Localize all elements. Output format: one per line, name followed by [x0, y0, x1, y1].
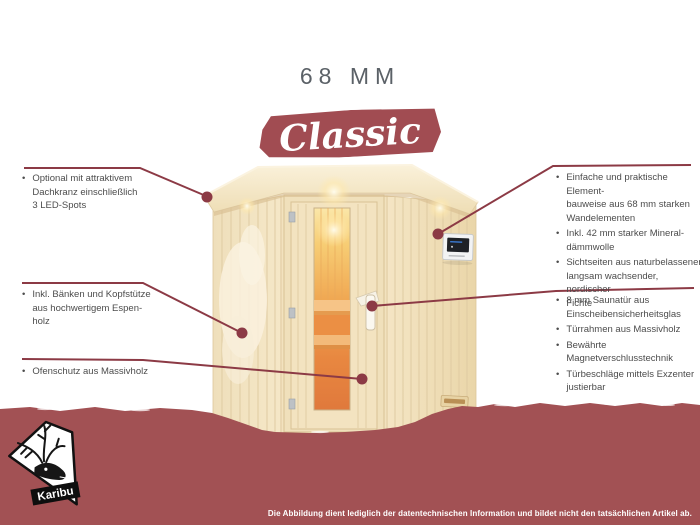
callout-left-baenke: • Inkl. Bänken und Kopfstütze aus hochwe…: [22, 288, 172, 331]
callout-item: • Einfache und praktische Element- bauwe…: [556, 171, 700, 225]
callout-text: Türbeschläge mittels Exzenter justierbar: [566, 368, 694, 395]
bullet-marker: •: [22, 172, 25, 213]
bullet-marker: •: [22, 365, 25, 379]
callout-dot-baenke: [237, 328, 248, 339]
text-line: Ofenschutz aus Massivholz: [32, 365, 148, 379]
callout-right-tuer: • 8 mm Saunatür aus Einscheibensicherhei…: [556, 294, 700, 397]
callout-item: • Inkl. Bänken und Kopfstütze aus hochwe…: [22, 288, 172, 329]
text-line: Sichtseiten aus naturbelassener,: [566, 256, 700, 270]
bullet-marker: •: [556, 339, 559, 366]
infographic-page: Karibu 68 MM Classic • Optional mit attr…: [0, 0, 700, 525]
text-line: Inkl. Bänken und Kopfstütze: [32, 288, 150, 302]
text-line: Einfache und praktische Element-: [566, 171, 700, 198]
text-line: Bewährte Magnetverschlusstechnik: [566, 339, 700, 366]
callout-text: Bewährte Magnetverschlusstechnik: [566, 339, 700, 366]
text-line: justierbar: [566, 381, 694, 395]
callout-text: Ofenschutz aus Massivholz: [32, 365, 148, 379]
control-panel-screen: [447, 238, 469, 253]
text-line: dämmwolle: [566, 241, 684, 255]
led-spot-glow: [317, 175, 351, 209]
callout-dot-dachkranz: [202, 192, 213, 203]
text-line: Türbeschläge mittels Exzenter: [566, 368, 694, 382]
callout-text: Inkl. 42 mm starker Mineral- dämmwolle: [566, 227, 684, 254]
callout-dot-ofenschutz: [357, 374, 368, 385]
callout-left-dachkranz: • Optional mit attraktivem Dachkranz ein…: [22, 172, 162, 215]
bullet-marker: •: [556, 227, 559, 254]
sauna-bench-view: [314, 300, 350, 349]
callout-text: Einfache und praktische Element- bauweis…: [566, 171, 700, 225]
text-line: Optional mit attraktivem: [32, 172, 137, 186]
sauna-right-wall: [387, 194, 476, 438]
sauna-front-wall: [281, 195, 387, 436]
sauna-door-glass: [314, 208, 351, 410]
interior-lamp-glow: [317, 213, 351, 247]
sauna-left-wall: [213, 195, 281, 436]
callout-item: • Bewährte Magnetverschlusstechnik: [556, 339, 700, 366]
callout-text: Optional mit attraktivem Dachkranz einsc…: [32, 172, 137, 213]
callout-text: Türrahmen aus Massivholz: [566, 323, 680, 337]
vent-slot: [441, 395, 469, 407]
bullet-marker: •: [556, 171, 559, 225]
text-line: Türrahmen aus Massivholz: [566, 323, 680, 337]
callout-right-wandelemente: • Einfache und praktische Element- bauwe…: [556, 171, 700, 312]
text-line: 8 mm Saunatür aus: [566, 294, 681, 308]
callout-item: • 8 mm Saunatür aus Einscheibensicherhei…: [556, 294, 700, 321]
callout-dot-wandelemente: [433, 229, 444, 240]
callout-dot-tuer: [367, 301, 378, 312]
text-line: 3 LED-Spots: [32, 199, 137, 213]
text-line: Einscheibensicherheitsglas: [566, 308, 681, 322]
page-title: 68 MM: [0, 63, 700, 90]
bullet-marker: •: [556, 368, 559, 395]
callout-text: 8 mm Saunatür aus Einscheibensicherheits…: [566, 294, 681, 321]
bullet-marker: •: [556, 323, 559, 337]
bullet-marker: •: [22, 288, 25, 329]
led-spot-glow: [238, 197, 256, 215]
text-line: Dachkranz einschließlich: [32, 186, 137, 200]
bullet-marker: •: [556, 294, 559, 321]
callout-item: • Türbeschläge mittels Exzenter justierb…: [556, 368, 700, 395]
text-line: holz: [32, 315, 150, 329]
led-spot-glow: [428, 196, 452, 220]
callout-item: • Türrahmen aus Massivholz: [556, 323, 700, 337]
text-line: Wandelementen: [566, 212, 700, 226]
text-line: bauweise aus 68 mm starken: [566, 198, 700, 212]
callout-item: • Inkl. 42 mm starker Mineral- dämmwolle: [556, 227, 700, 254]
text-line: Inkl. 42 mm starker Mineral-: [566, 227, 684, 241]
text-line: langsam wachsender, nordischer: [566, 270, 700, 297]
callout-item: • Ofenschutz aus Massivholz: [22, 365, 197, 379]
callout-left-ofenschutz: • Ofenschutz aus Massivholz: [22, 365, 197, 381]
footer-disclaimer: Die Abbildung dient lediglich der datent…: [268, 509, 692, 518]
callout-text: Inkl. Bänken und Kopfstütze aus hochwert…: [32, 288, 150, 329]
text-line: aus hochwertigem Espen-: [32, 302, 150, 316]
callout-item: • Optional mit attraktivem Dachkranz ein…: [22, 172, 162, 213]
